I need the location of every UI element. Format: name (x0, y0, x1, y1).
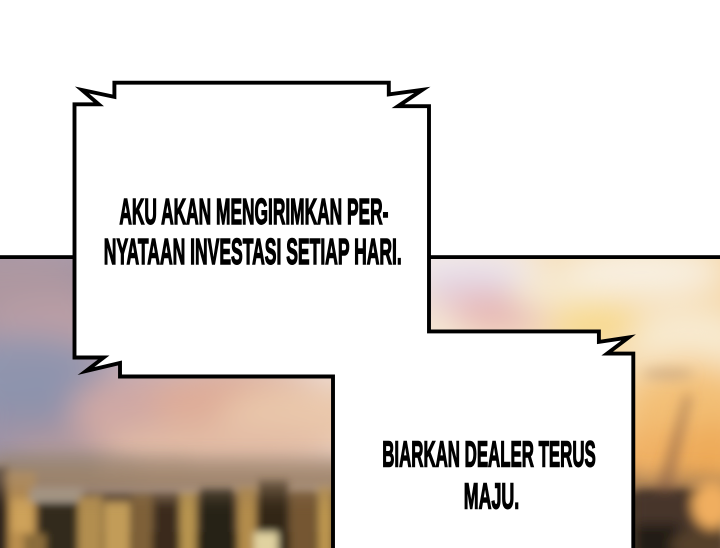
svg-text:NYATAAN INVESTASI SETIAP HARI.: NYATAAN INVESTASI SETIAP HARI. (104, 231, 402, 272)
svg-text:AKU AKAN MENGIRIMKAN PER-: AKU AKAN MENGIRIMKAN PER- (119, 191, 388, 232)
svg-text:BIARKAN DEALER TERUS: BIARKAN DEALER TERUS (382, 434, 596, 475)
svg-text:MAJU.: MAJU. (464, 475, 520, 516)
